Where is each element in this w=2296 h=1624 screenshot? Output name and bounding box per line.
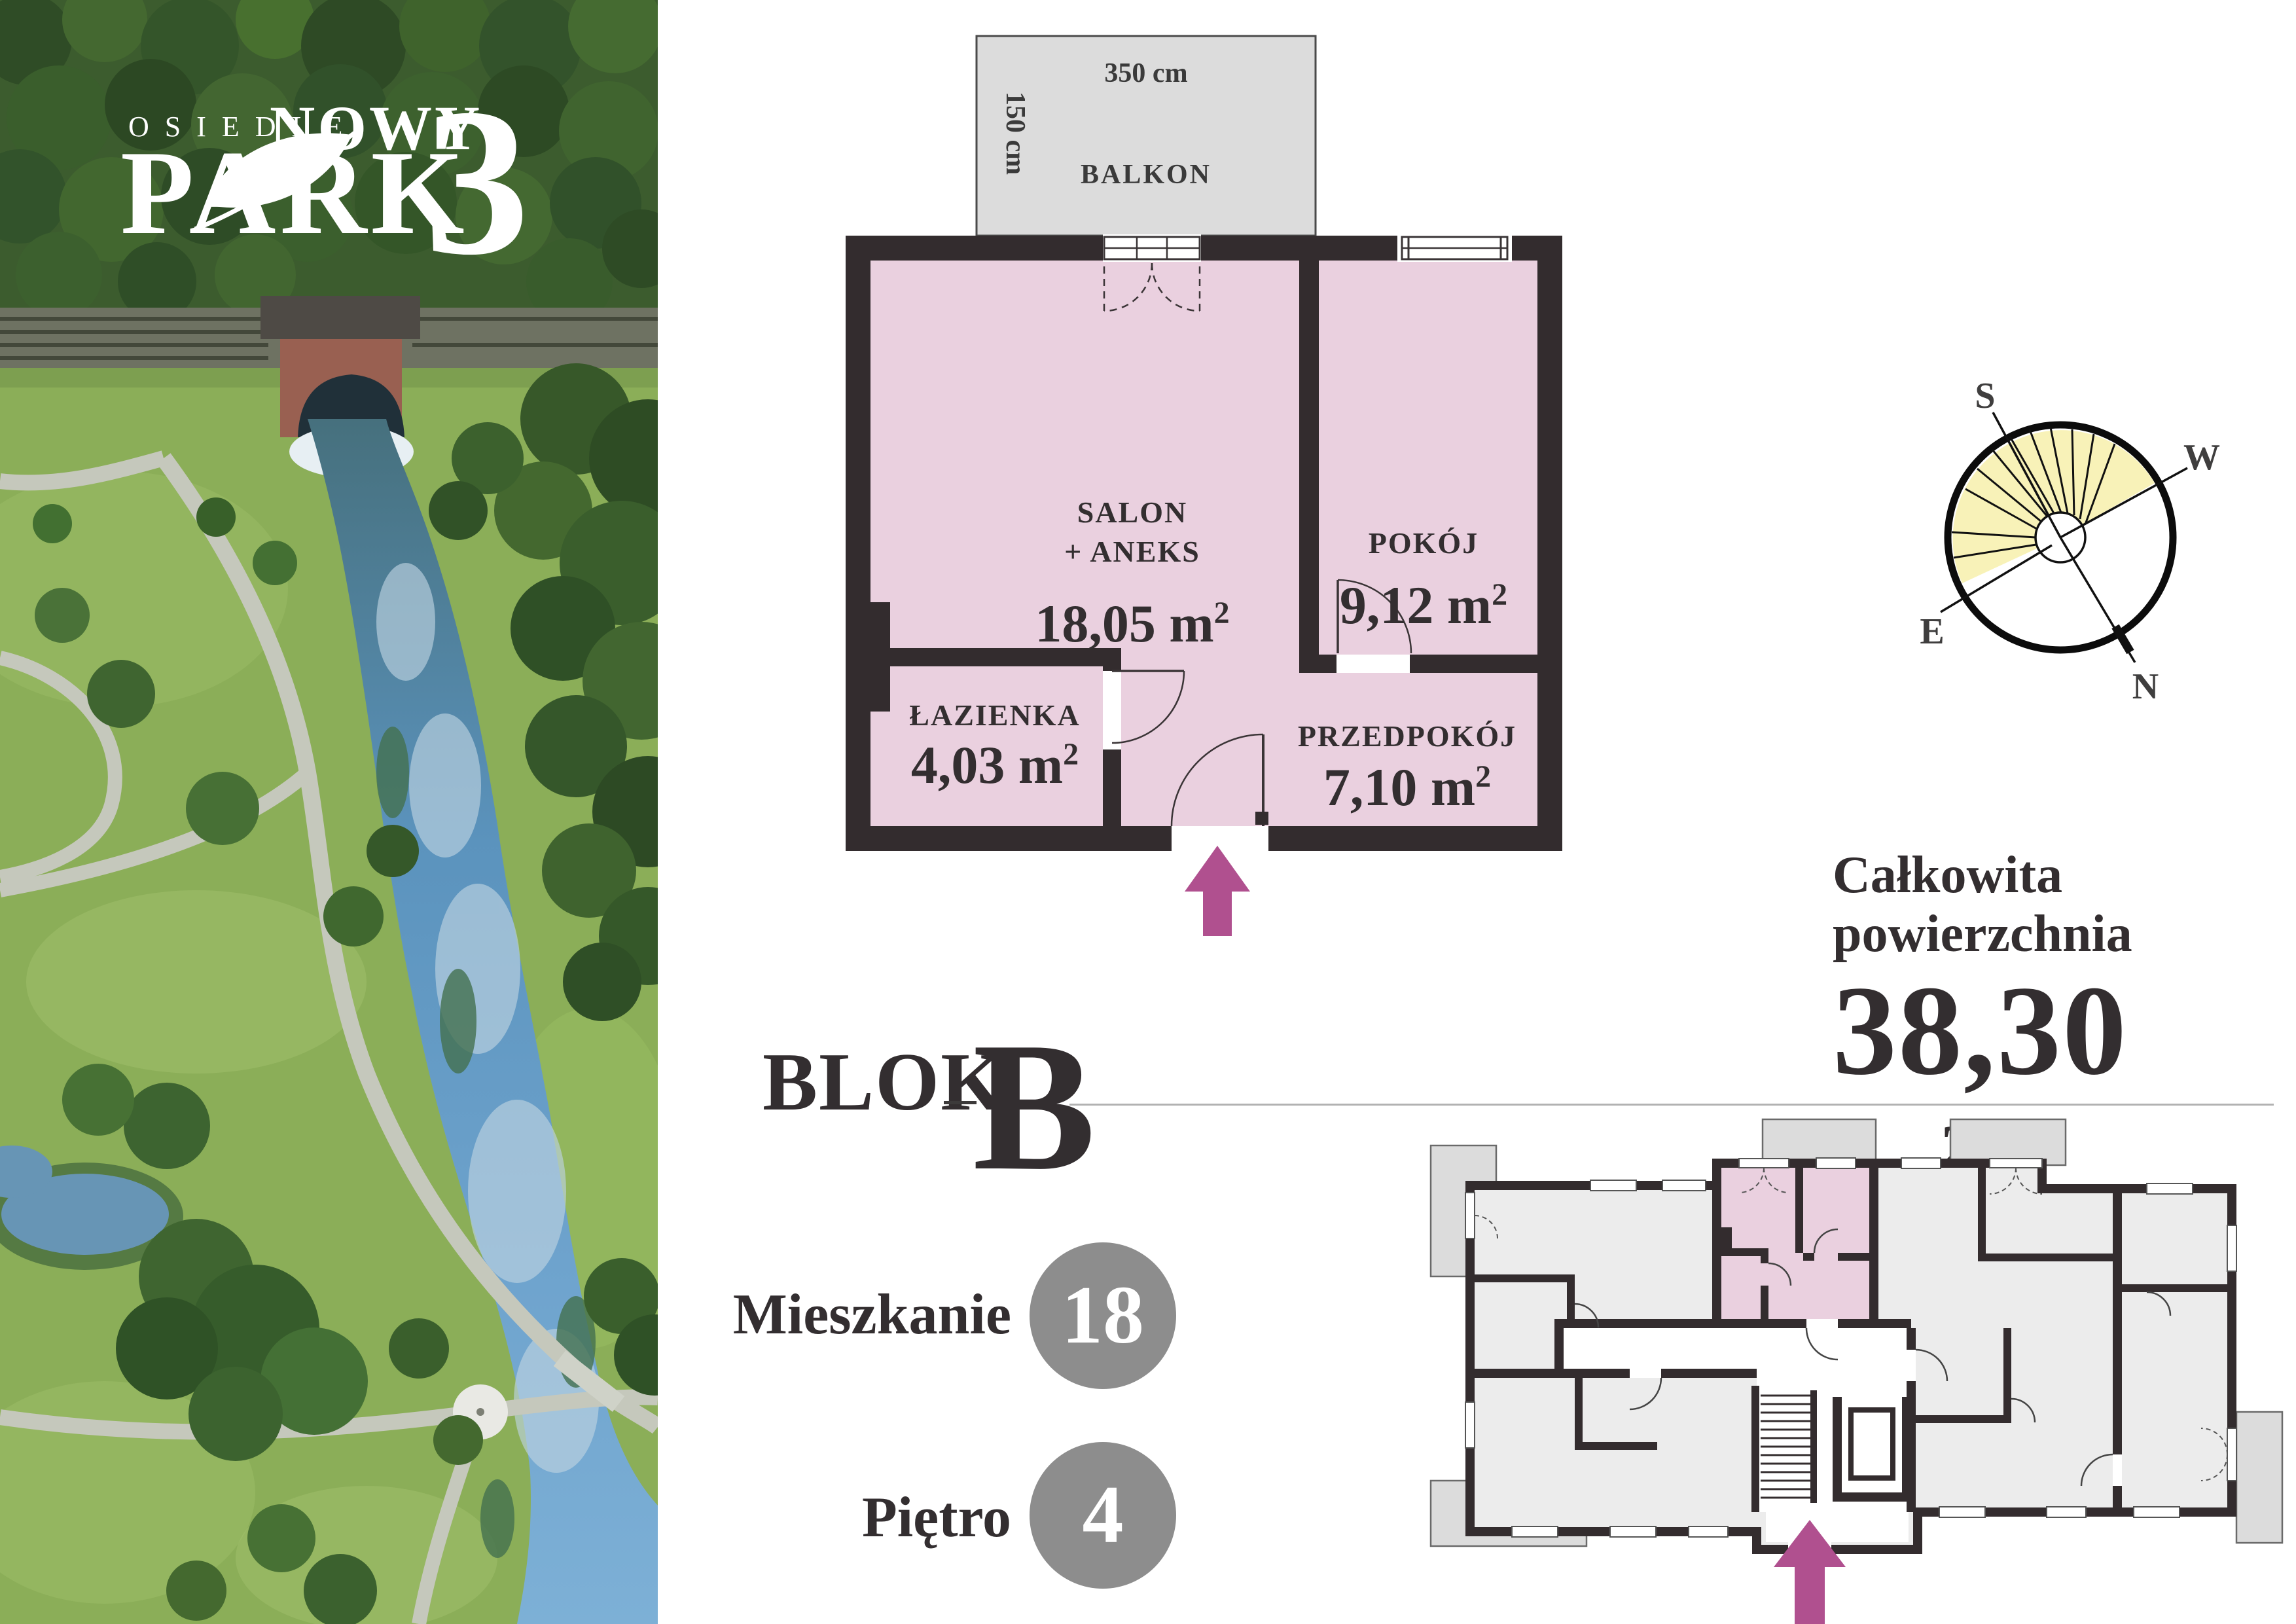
aerial-park-photo: OSIEDLE NOWY PARK 3	[0, 0, 658, 1624]
window	[1397, 234, 1512, 262]
salon-area: 18,05 m2	[1035, 594, 1229, 653]
compass-north-label: N	[2132, 666, 2159, 707]
apartment-floor-plan: 350 cm BALKON 150 cm	[831, 26, 1577, 936]
apartment-number-badge: 18	[1030, 1242, 1176, 1389]
przedpokoj-area: 7,10 m2	[1323, 757, 1491, 817]
leaf-icon	[188, 128, 365, 233]
balcony-label: BALKON	[1081, 160, 1211, 190]
floor-plan-drawing: 350 cm BALKON 150 cm	[831, 26, 1577, 936]
apartment-card-page: OSIEDLE NOWY PARK 3 350 cm BALKON 150 cm	[0, 0, 2296, 1624]
block-dash	[944, 1101, 977, 1104]
logo: OSIEDLE NOWY PARK 3	[0, 0, 658, 340]
salon-name2: + ANEKS	[1064, 535, 1200, 568]
building-plan-drawing	[1414, 1088, 2284, 1624]
floor-number-value: 4	[1083, 1468, 1124, 1562]
floor-number-label: Piętro	[717, 1485, 1011, 1551]
lazienka-name: ŁAZIENKA	[909, 698, 1080, 732]
przedpokoj-name: PRZEDPOKÓJ	[1298, 719, 1516, 753]
highlighted-unit	[1721, 1168, 1869, 1319]
pokoj-area: 9,12 m2	[1340, 575, 1507, 635]
entrance-arrow-icon	[1185, 846, 1250, 936]
total-area-title: Całkowita powierzchnia	[1833, 846, 2132, 964]
lazienka-area: 4,03 m2	[911, 735, 1079, 795]
pokoj-name: POKÓJ	[1369, 526, 1479, 560]
balcony: 350 cm BALKON 150 cm	[977, 36, 1316, 236]
block-value: B	[973, 1000, 1096, 1212]
apartment-number-label: Mieszkanie	[717, 1282, 1011, 1348]
balcony-width-label: 350 cm	[1104, 58, 1187, 88]
total-area-title-line1: Całkowita	[1833, 846, 2132, 905]
compass-icon: S W E N	[1892, 376, 2238, 723]
balcony-depth-label: 150 cm	[1000, 92, 1030, 175]
building-floor-overview	[1414, 1088, 2284, 1624]
salon-name: SALON	[1077, 496, 1187, 529]
compass-sun-diagram: S W E N	[1892, 376, 2238, 723]
logo-number: 3	[424, 60, 529, 303]
floor-number-badge: 4	[1030, 1442, 1176, 1589]
total-area-title-line2: powierzchnia	[1833, 905, 2132, 964]
compass-east-label: E	[1920, 611, 1944, 652]
compass-west-label: W	[2183, 437, 2220, 478]
block-label: BLOK	[762, 1036, 1006, 1130]
apartment-number-value: 18	[1062, 1269, 1144, 1363]
compass-south-label: S	[1975, 376, 1995, 416]
